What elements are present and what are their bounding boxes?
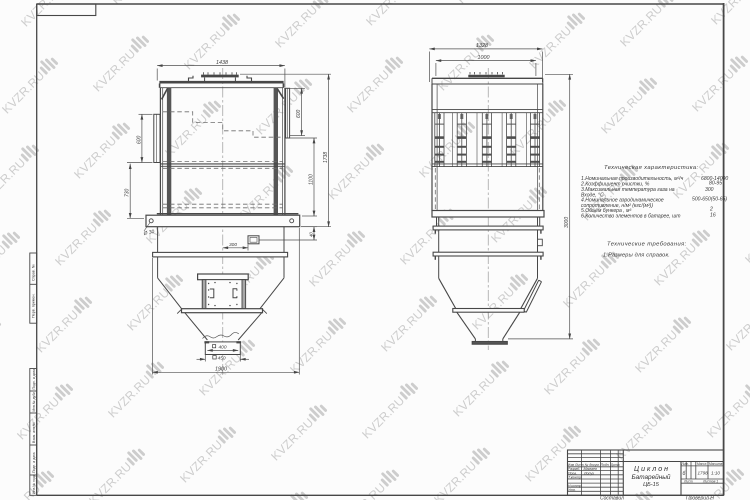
svg-text:1900: 1900 bbox=[215, 367, 227, 373]
svg-text:Перв. примен.: Перв. примен. bbox=[32, 293, 36, 318]
svg-text:Лопух: Лопух bbox=[583, 471, 594, 475]
svg-text:Составил: Составил bbox=[600, 496, 624, 500]
svg-text:Инв.№ подл.: Инв.№ подл. bbox=[32, 473, 36, 494]
svg-text:Масса: Масса bbox=[697, 462, 707, 466]
svg-text:3000: 3000 bbox=[564, 217, 570, 228]
svg-text:Технические требования:: Технические требования: bbox=[607, 242, 687, 248]
svg-text:Подп. и дата: Подп. и дата bbox=[32, 369, 36, 390]
svg-text:1328: 1328 bbox=[476, 43, 488, 49]
svg-text:6.Количество элементов в ба: 6.Количество элементов в батарее, шт bbox=[581, 214, 681, 220]
svg-text:Подп. и дата: Подп. и дата bbox=[32, 452, 36, 473]
svg-text:Листов 1: Листов 1 bbox=[702, 480, 718, 484]
svg-text:1738: 1738 bbox=[323, 152, 329, 163]
svg-text:730: 730 bbox=[125, 188, 131, 197]
svg-text:1:10: 1:10 bbox=[711, 471, 720, 476]
svg-text:б: б bbox=[683, 471, 686, 477]
svg-text:450: 450 bbox=[218, 356, 226, 362]
svg-text:Проверил Н: Проверил Н bbox=[686, 496, 714, 500]
svg-text:1.Размеры для справок.: 1.Размеры для справок. bbox=[603, 253, 670, 259]
svg-text:Циклон: Циклон bbox=[634, 466, 670, 473]
svg-text:16: 16 bbox=[710, 213, 716, 219]
svg-text:1798: 1798 bbox=[698, 471, 709, 476]
svg-text:Батарейный: Батарейный bbox=[632, 473, 671, 481]
svg-text:ЦБ-15: ЦБ-15 bbox=[643, 482, 660, 488]
svg-text:300: 300 bbox=[229, 242, 237, 248]
svg-text:Масштаб: Масштаб bbox=[709, 462, 724, 466]
svg-text:Техническая характеристика:: Техническая характеристика: bbox=[604, 165, 699, 171]
svg-text:80-95: 80-95 bbox=[709, 181, 722, 187]
svg-text:Т.контр.: Т.контр. bbox=[568, 476, 582, 480]
svg-text:Инв.№ дубл.: Инв.№ дубл. bbox=[32, 391, 36, 412]
svg-text:1100: 1100 bbox=[308, 174, 314, 185]
svg-text:500-650(50-65): 500-650(50-65) bbox=[692, 197, 727, 203]
svg-text:600: 600 bbox=[296, 109, 302, 118]
svg-text:Справ. №: Справ. № bbox=[32, 264, 36, 281]
svg-text:Утв.: Утв. bbox=[568, 488, 576, 492]
svg-text:Лист: Лист bbox=[683, 480, 693, 484]
svg-text:300: 300 bbox=[705, 187, 714, 193]
svg-text:400: 400 bbox=[219, 345, 227, 351]
svg-text:600: 600 bbox=[136, 135, 142, 144]
svg-text:Лит.: Лит. bbox=[681, 462, 690, 466]
svg-text:1000: 1000 bbox=[478, 55, 490, 61]
svg-text:Взам. инв.№: Взам. инв.№ bbox=[32, 422, 36, 443]
svg-text:40: 40 bbox=[308, 232, 313, 237]
svg-text:1438: 1438 bbox=[216, 60, 228, 66]
